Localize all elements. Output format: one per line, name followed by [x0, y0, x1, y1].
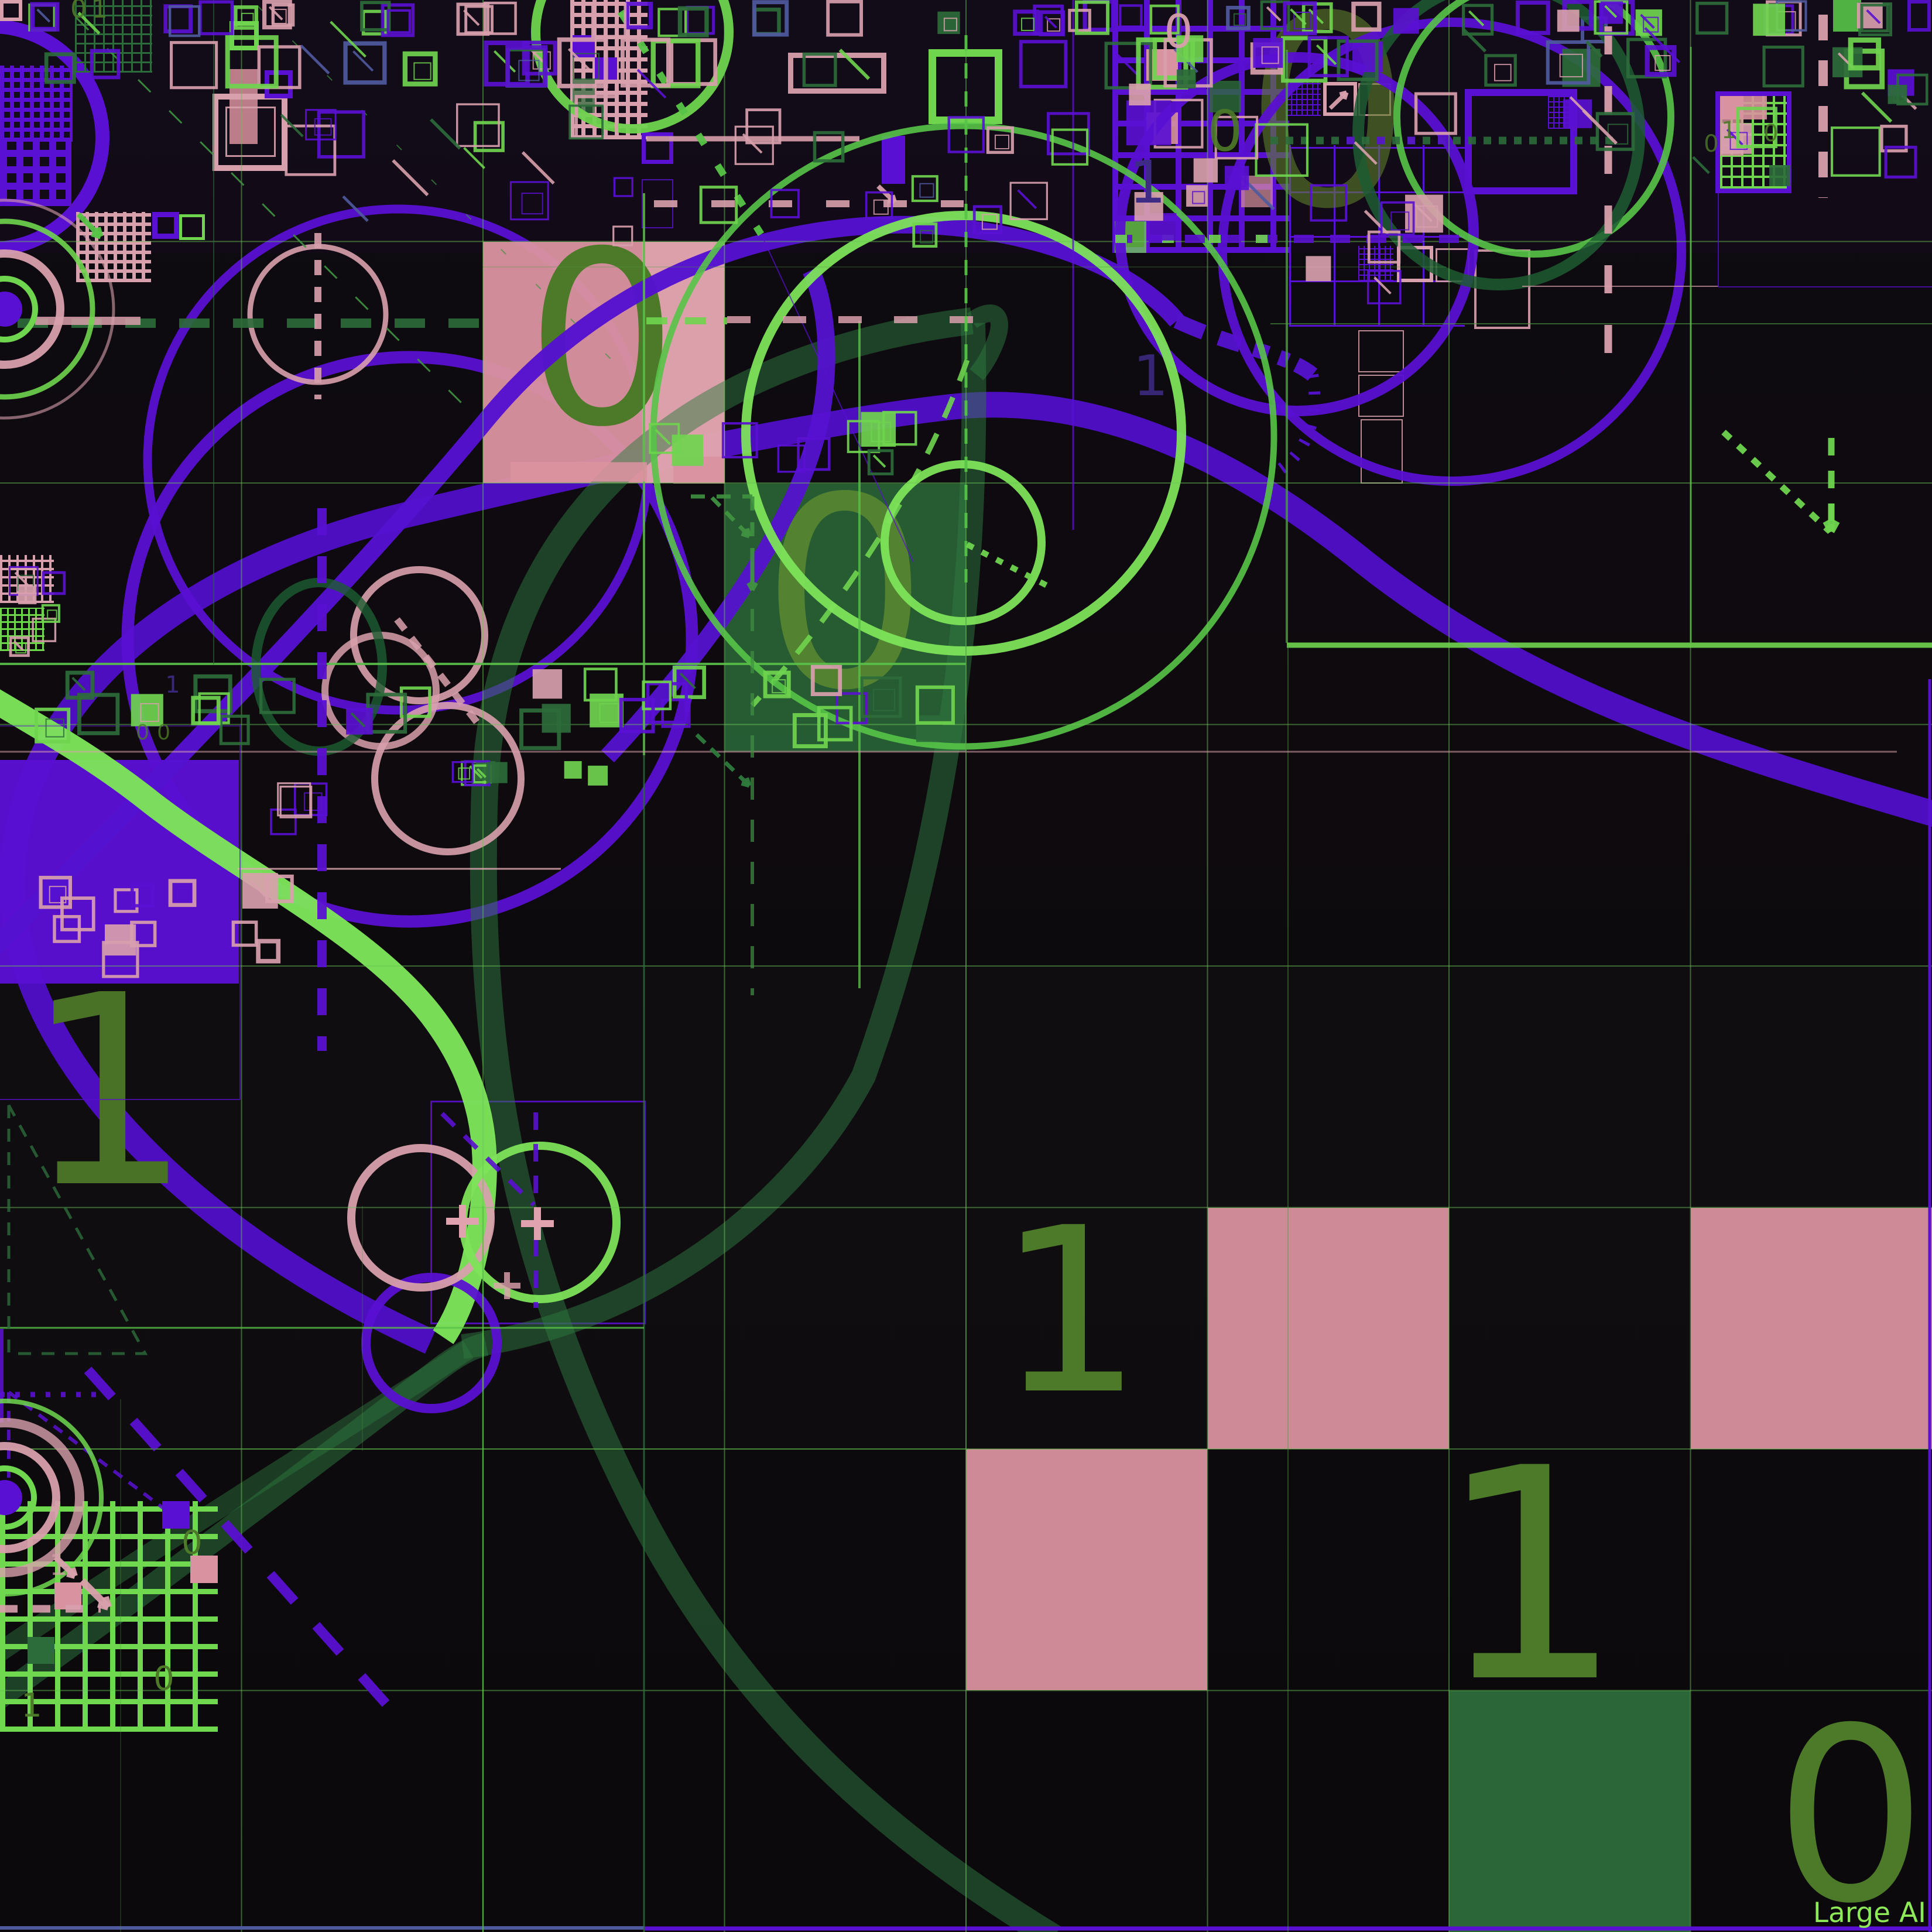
- small-digit-0: 0: [1164, 9, 1193, 55]
- small-digit-1: 1: [165, 673, 180, 697]
- small-digit-0: 0: [1763, 122, 1779, 145]
- small-digit-0: 0: [157, 722, 170, 744]
- small-digit-0: 0: [136, 722, 149, 744]
- small-digit-0: 0: [1704, 132, 1719, 156]
- small-digit-1: 1: [21, 1690, 42, 1722]
- small-digit-1: 1: [49, 1550, 68, 1580]
- small-digit-1: 1: [91, 0, 108, 22]
- small-digit-0: 0: [70, 0, 87, 22]
- small-digit-1: 1: [1133, 349, 1169, 405]
- small-digit-0: 0: [1207, 104, 1243, 160]
- small-digit-1: 1: [1721, 119, 1736, 142]
- small-digits-layer: 0110010100011001: [0, 0, 1932, 1932]
- small-digit-1: 1: [1129, 153, 1166, 212]
- small-digit-0: 0: [181, 1527, 203, 1560]
- small-digit-0: 0: [153, 1663, 174, 1695]
- signature-text: Large AI: [1790, 1899, 1926, 1927]
- artwork-canvas: 0011100 0110010100011001 Large AI: [0, 0, 1932, 1932]
